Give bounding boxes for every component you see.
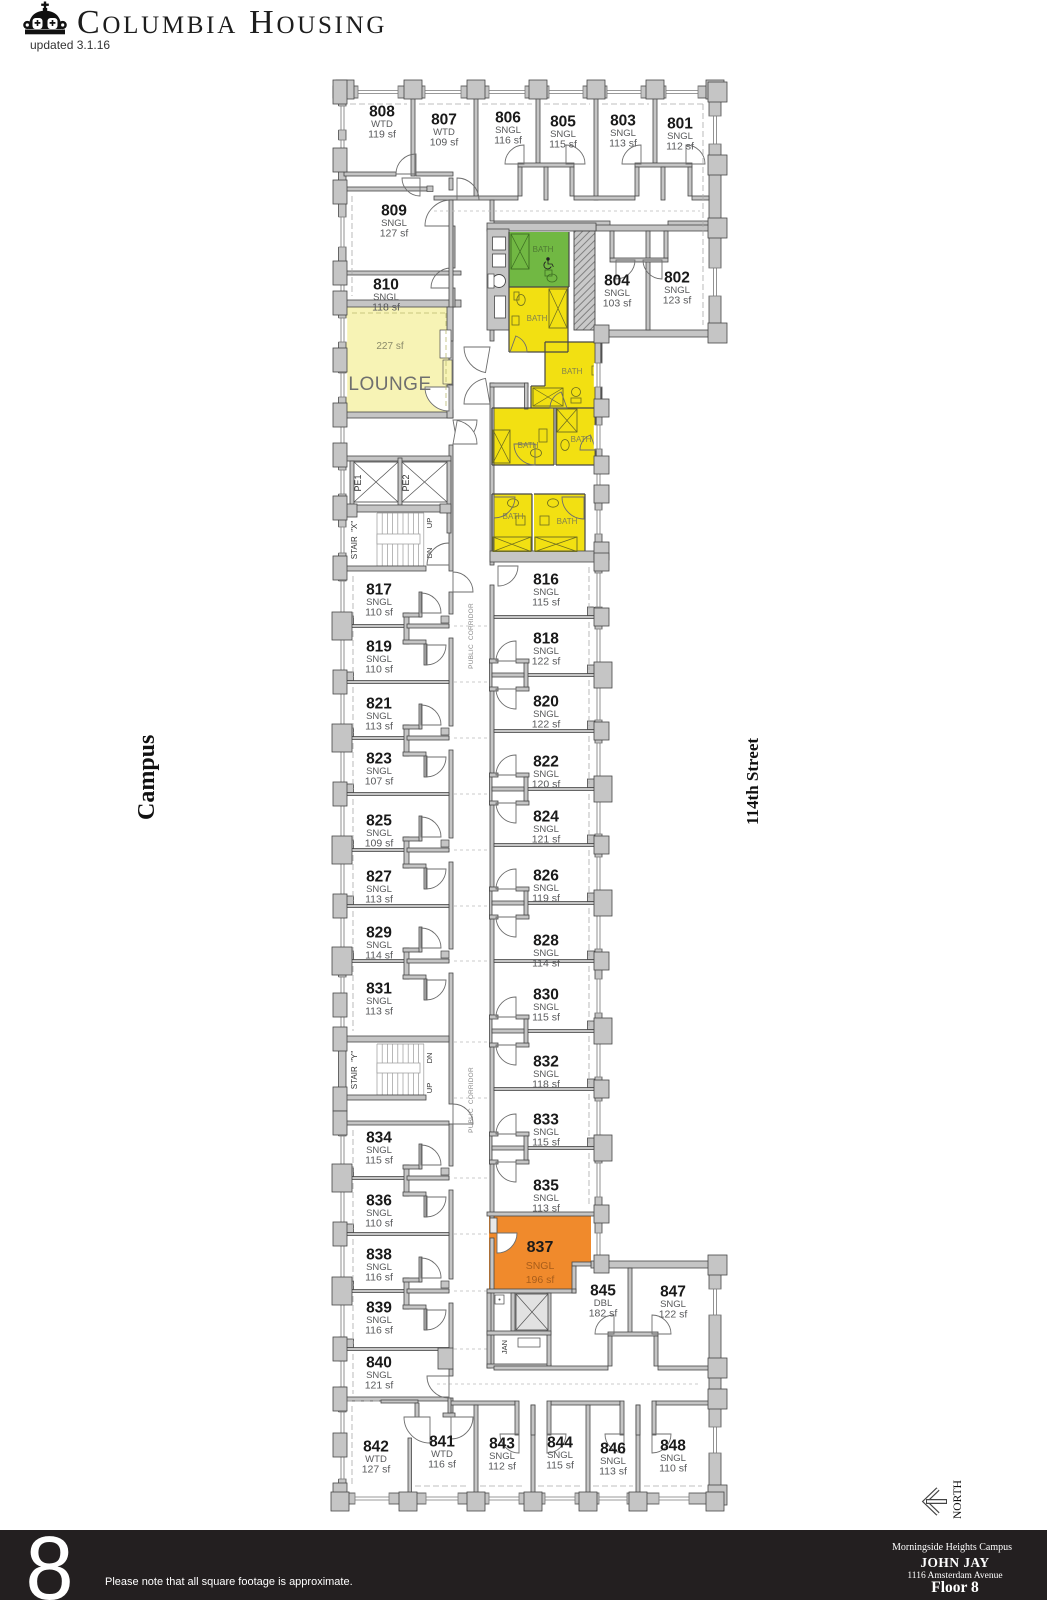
svg-text:DN: DN: [425, 548, 434, 559]
svg-text:119 sf: 119 sf: [532, 893, 560, 905]
svg-text:827: 827: [366, 869, 392, 886]
svg-text:115 sf: 115 sf: [532, 597, 560, 609]
svg-text:118 sf: 118 sf: [372, 302, 400, 314]
svg-text:PUBLIC CORRIDOR: PUBLIC CORRIDOR: [468, 603, 475, 669]
svg-text:227 sf: 227 sf: [376, 341, 403, 352]
svg-text:LOUNGE: LOUNGE: [348, 374, 431, 395]
svg-text:847: 847: [660, 1284, 686, 1301]
svg-text:UP: UP: [425, 518, 434, 528]
svg-text:Campus: Campus: [134, 735, 160, 820]
svg-text:116 sf: 116 sf: [365, 1272, 393, 1284]
svg-text:807: 807: [431, 112, 457, 129]
svg-text:825: 825: [366, 813, 392, 830]
svg-text:817: 817: [366, 582, 392, 599]
svg-text:829: 829: [366, 925, 392, 942]
svg-text:113 sf: 113 sf: [365, 1006, 393, 1018]
svg-text:835: 835: [533, 1178, 559, 1195]
svg-text:113 sf: 113 sf: [599, 1466, 627, 1478]
svg-text:121 sf: 121 sf: [532, 834, 561, 846]
svg-text:114th Street: 114th Street: [743, 738, 762, 825]
svg-text:826: 826: [533, 868, 559, 885]
svg-text:NORTH: NORTH: [952, 1480, 964, 1519]
svg-text:STAIR "Y": STAIR "Y": [350, 1051, 359, 1090]
svg-text:839: 839: [366, 1300, 392, 1317]
svg-text:836: 836: [366, 1193, 392, 1210]
svg-text:833: 833: [533, 1112, 559, 1129]
svg-text:122 sf: 122 sf: [532, 656, 561, 668]
svg-text:806: 806: [495, 110, 521, 127]
svg-text:112 sf: 112 sf: [488, 1461, 516, 1473]
svg-text:116 sf: 116 sf: [494, 135, 522, 147]
svg-text:840: 840: [366, 1355, 392, 1372]
svg-text:828: 828: [533, 933, 559, 950]
svg-text:BATH: BATH: [527, 314, 548, 323]
svg-text:123 sf: 123 sf: [663, 295, 692, 307]
svg-text:107 sf: 107 sf: [365, 776, 394, 788]
svg-text:Morningside Heights Campus: Morningside Heights Campus: [892, 1542, 1012, 1553]
svg-text:113 sf: 113 sf: [609, 138, 637, 150]
svg-text:822: 822: [533, 754, 559, 771]
svg-text:103 sf: 103 sf: [603, 298, 632, 310]
svg-text:8: 8: [26, 1519, 74, 1600]
svg-text:845: 845: [590, 1283, 616, 1300]
svg-text:118 sf: 118 sf: [532, 1079, 560, 1091]
svg-text:824: 824: [533, 809, 559, 826]
svg-text:PE1: PE1: [353, 474, 363, 491]
svg-text:BATH: BATH: [533, 245, 554, 254]
svg-text:804: 804: [604, 273, 630, 290]
svg-text:115 sf: 115 sf: [532, 1012, 560, 1024]
svg-text:113 sf: 113 sf: [365, 894, 393, 906]
svg-text:821: 821: [366, 696, 392, 713]
svg-text:843: 843: [489, 1436, 515, 1453]
svg-text:Floor 8: Floor 8: [931, 1579, 979, 1596]
svg-text:110 sf: 110 sf: [659, 1463, 687, 1475]
svg-text:122 sf: 122 sf: [532, 719, 561, 731]
svg-text:updated 3.1.16: updated 3.1.16: [30, 38, 110, 52]
svg-text:114 sf: 114 sf: [365, 950, 393, 962]
svg-text:PE2: PE2: [401, 474, 411, 491]
svg-text:838: 838: [366, 1247, 392, 1264]
svg-text:116 sf: 116 sf: [365, 1325, 393, 1337]
svg-text:122 sf: 122 sf: [659, 1309, 688, 1321]
svg-text:818: 818: [533, 631, 559, 648]
svg-text:Please note that all square fo: Please note that all square footage is a…: [105, 1576, 353, 1588]
svg-text:127 sf: 127 sf: [362, 1464, 391, 1476]
svg-text:110 sf: 110 sf: [365, 664, 393, 676]
svg-text:119 sf: 119 sf: [368, 129, 396, 141]
svg-text:110 sf: 110 sf: [365, 607, 393, 619]
svg-text:109 sf: 109 sf: [365, 838, 394, 850]
svg-text:831: 831: [366, 981, 392, 998]
svg-text:832: 832: [533, 1054, 559, 1071]
svg-text:115 sf: 115 sf: [532, 1137, 560, 1149]
svg-text:830: 830: [533, 987, 559, 1004]
svg-text:113 sf: 113 sf: [365, 721, 393, 733]
svg-text:844: 844: [547, 1435, 573, 1452]
svg-text:848: 848: [660, 1438, 686, 1455]
svg-text:115 sf: 115 sf: [546, 1460, 574, 1472]
svg-text:823: 823: [366, 751, 392, 768]
svg-text:PUBLIC CORRIDOR: PUBLIC CORRIDOR: [468, 1067, 475, 1133]
svg-text:BATH: BATH: [557, 517, 578, 526]
svg-text:182 sf: 182 sf: [589, 1308, 618, 1320]
svg-text:110 sf: 110 sf: [365, 1218, 393, 1230]
svg-text:116 sf: 116 sf: [428, 1459, 456, 1471]
svg-text:BATH: BATH: [503, 512, 524, 521]
svg-text:802: 802: [664, 270, 690, 287]
svg-text:DN: DN: [425, 1053, 434, 1064]
svg-text:809: 809: [381, 203, 407, 220]
svg-text:BATH: BATH: [562, 367, 583, 376]
svg-text:114 sf: 114 sf: [532, 958, 560, 970]
svg-text:115 sf: 115 sf: [549, 139, 577, 151]
svg-text:808: 808: [369, 104, 395, 121]
svg-text:842: 842: [363, 1439, 389, 1456]
svg-text:JAN: JAN: [500, 1340, 509, 1354]
svg-text:112 sf: 112 sf: [666, 141, 694, 153]
svg-text:JOHN JAY: JOHN JAY: [920, 1555, 989, 1570]
svg-text:SNGL: SNGL: [526, 1260, 555, 1272]
svg-text:121 sf: 121 sf: [365, 1380, 394, 1392]
svg-text:803: 803: [610, 113, 636, 130]
svg-text:834: 834: [366, 1130, 392, 1147]
svg-text:820: 820: [533, 694, 559, 711]
svg-text:115 sf: 115 sf: [365, 1155, 393, 1167]
svg-text:109 sf: 109 sf: [430, 137, 459, 149]
svg-text:846: 846: [600, 1441, 626, 1458]
svg-text:196 sf: 196 sf: [526, 1274, 555, 1286]
svg-text:810: 810: [373, 277, 399, 294]
svg-text:127 sf: 127 sf: [380, 228, 409, 240]
svg-text:841: 841: [429, 1434, 455, 1451]
svg-text:819: 819: [366, 639, 392, 656]
svg-text:837: 837: [527, 1239, 554, 1256]
svg-text:816: 816: [533, 572, 559, 589]
svg-text:120 sf: 120 sf: [532, 779, 561, 791]
svg-text:805: 805: [550, 114, 576, 131]
svg-text:UP: UP: [425, 1083, 434, 1093]
svg-text:801: 801: [667, 116, 693, 133]
svg-text:STAIR "X": STAIR "X": [350, 521, 359, 560]
